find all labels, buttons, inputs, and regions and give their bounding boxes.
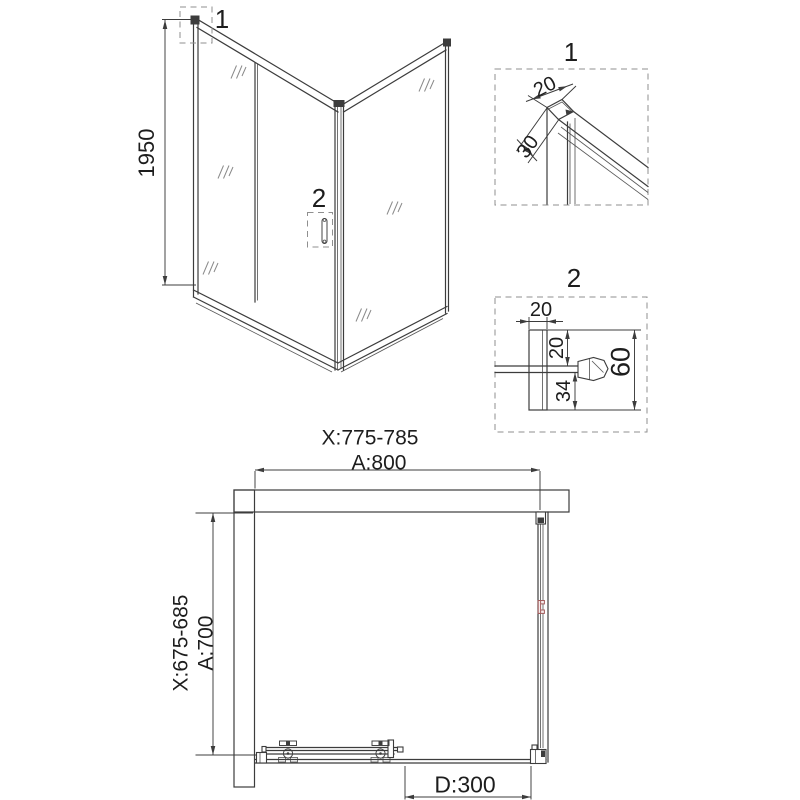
left-frame-post [194, 18, 199, 297]
roller-right [371, 741, 390, 762]
iso-height-dim-label: 1950 [136, 129, 158, 178]
iso-callout-2-label: 2 [312, 185, 326, 211]
wall-profile-section [529, 330, 547, 410]
technical-drawing-page: 1950 1 2 1 20 30 2 20 20 34 60 X:775-785… [0, 0, 800, 800]
detail-1-border [495, 69, 648, 205]
top-right-corner-cap [443, 39, 451, 47]
door-bumper [398, 747, 404, 752]
detail-1-title: 1 [564, 39, 578, 65]
plan-door-width-label: D:300 [434, 774, 495, 797]
iso-view [162, 7, 451, 372]
wall-clip-red [538, 601, 544, 614]
detail-1-view [495, 69, 648, 205]
wall-hatch-top [234, 490, 569, 512]
handle-profile [578, 358, 608, 381]
drawing-linework [0, 0, 800, 800]
detail-2-dim-total: 60 [608, 347, 635, 377]
right-frame-post [446, 42, 449, 313]
detail-2-dim-top: 20 [547, 337, 567, 359]
plan-view [196, 468, 570, 800]
front-bottom-rail [194, 290, 339, 370]
detail-2-title: 2 [567, 265, 581, 291]
plan-depth-label: A:700 [196, 616, 217, 671]
track-left-cap [257, 753, 267, 764]
plan-width-range-label: X:775-785 [322, 428, 419, 449]
iso-callout-1-label: 1 [215, 6, 229, 32]
detail-2-dim-bottom: 34 [554, 380, 574, 402]
corner-post [335, 104, 344, 370]
roller-left [279, 741, 298, 762]
plan-width-label: A:800 [352, 453, 407, 474]
callout-box-2 [308, 213, 333, 248]
side-top-rail [344, 42, 447, 112]
door-handle [322, 219, 327, 244]
bottom-track [255, 760, 546, 764]
wall-hatch-left [234, 490, 255, 787]
side-bottom-rail [338, 307, 447, 371]
detail-2-dim-profile-width: 20 [530, 300, 552, 320]
plan-depth-range-label: X:675-685 [171, 595, 192, 692]
glass-section [495, 366, 578, 373]
